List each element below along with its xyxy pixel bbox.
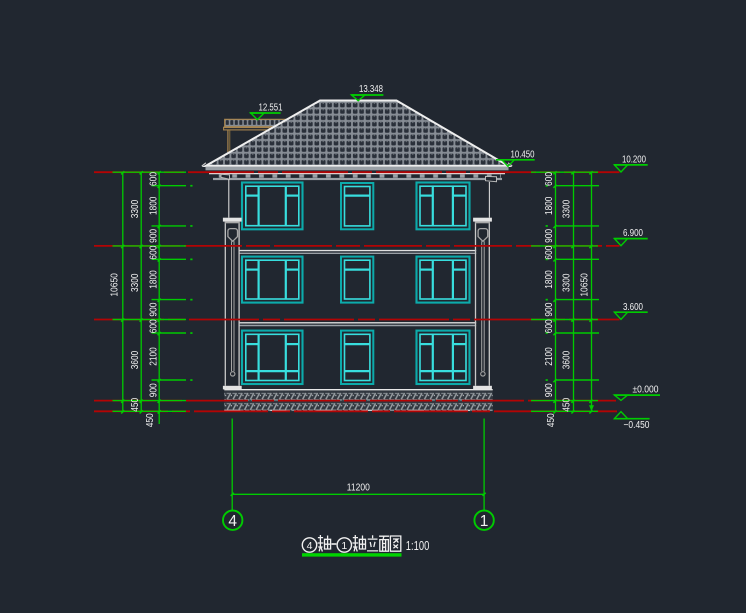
svg-text:900: 900 xyxy=(544,229,555,243)
svg-text:1800: 1800 xyxy=(148,270,159,289)
svg-text:600: 600 xyxy=(148,319,159,333)
svg-text:10.200: 10.200 xyxy=(622,155,646,166)
svg-text:600: 600 xyxy=(544,319,555,333)
svg-text:3300: 3300 xyxy=(562,273,573,292)
svg-text:10650: 10650 xyxy=(109,273,120,297)
svg-text:450: 450 xyxy=(130,398,141,412)
svg-text:900: 900 xyxy=(148,302,159,316)
svg-text:1: 1 xyxy=(480,513,489,530)
svg-text:12.551: 12.551 xyxy=(259,102,283,113)
svg-text:3.600: 3.600 xyxy=(623,302,643,313)
svg-text:1800: 1800 xyxy=(148,196,159,215)
svg-text:6.900: 6.900 xyxy=(623,228,643,239)
svg-text:600: 600 xyxy=(148,245,159,259)
svg-text:±0.000: ±0.000 xyxy=(633,385,659,396)
svg-text:900: 900 xyxy=(148,383,159,397)
svg-text:900: 900 xyxy=(148,229,159,243)
svg-text:3300: 3300 xyxy=(130,200,141,219)
svg-text:600: 600 xyxy=(544,245,555,259)
svg-text:2100: 2100 xyxy=(148,347,159,366)
svg-text:10650: 10650 xyxy=(580,273,591,297)
svg-text:1: 1 xyxy=(341,540,347,552)
svg-text:1:100: 1:100 xyxy=(406,539,430,553)
svg-text:450: 450 xyxy=(562,398,573,412)
svg-text:2100: 2100 xyxy=(544,347,555,366)
svg-text:1800: 1800 xyxy=(544,196,555,215)
svg-text:3600: 3600 xyxy=(562,351,573,370)
svg-text:600: 600 xyxy=(148,172,159,186)
svg-text:11200: 11200 xyxy=(347,482,370,493)
svg-text:450: 450 xyxy=(546,413,557,427)
svg-text:3600: 3600 xyxy=(130,351,141,370)
svg-text:4: 4 xyxy=(307,540,313,552)
svg-text:3300: 3300 xyxy=(130,273,141,292)
svg-text:900: 900 xyxy=(544,383,555,397)
svg-text:900: 900 xyxy=(544,302,555,316)
svg-text:13.348: 13.348 xyxy=(359,84,383,95)
svg-text:4: 4 xyxy=(228,513,237,530)
svg-text:450: 450 xyxy=(145,413,156,427)
svg-text:600: 600 xyxy=(544,172,555,186)
svg-text:1800: 1800 xyxy=(544,270,555,289)
svg-text:3300: 3300 xyxy=(562,200,573,219)
svg-text:−0.450: −0.450 xyxy=(624,420,650,431)
svg-text:10.450: 10.450 xyxy=(511,149,535,160)
